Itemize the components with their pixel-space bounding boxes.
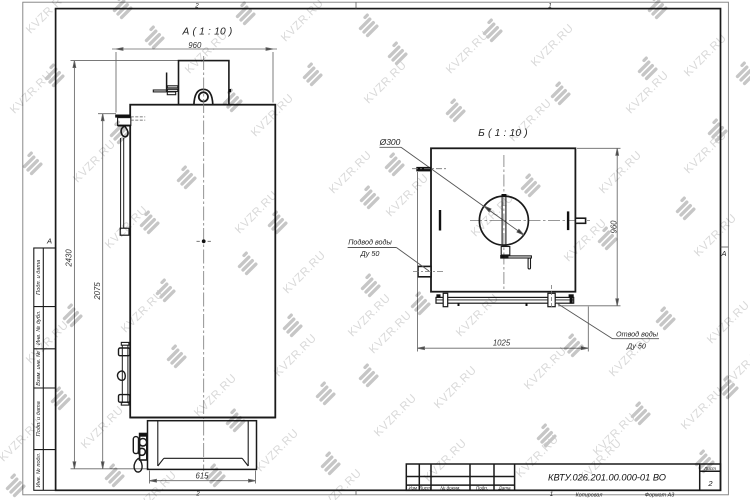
svg-text:Дата: Дата xyxy=(497,485,511,490)
svg-text:2075: 2075 xyxy=(93,282,102,301)
svg-text:2430: 2430 xyxy=(65,249,74,268)
svg-text:Ду 50: Ду 50 xyxy=(360,249,380,258)
svg-text:А: А xyxy=(720,249,726,258)
svg-text:Формат А3: Формат А3 xyxy=(645,493,675,499)
svg-text:КВТУ.026.201.00.000-01 ВО: КВТУ.026.201.00.000-01 ВО xyxy=(548,473,666,483)
svg-text:Отвод воды: Отвод воды xyxy=(616,329,659,338)
svg-text:Подвод воды: Подвод воды xyxy=(348,238,392,247)
svg-text:1025: 1025 xyxy=(493,339,511,348)
svg-text:Подп. и дата: Подп. и дата xyxy=(36,260,42,295)
svg-text:Изм: Изм xyxy=(409,485,418,490)
svg-text:Инв. № подл.: Инв. № подл. xyxy=(36,453,42,488)
svg-text:Ø300: Ø300 xyxy=(379,137,401,147)
svg-text:Копировал: Копировал xyxy=(576,493,603,499)
svg-text:1: 1 xyxy=(548,2,551,9)
svg-text:2: 2 xyxy=(707,479,713,488)
svg-text:Лист: Лист xyxy=(418,485,431,490)
svg-text:1: 1 xyxy=(550,491,553,498)
svg-text:960: 960 xyxy=(609,220,618,234)
svg-text:А: А xyxy=(46,237,52,246)
svg-text:2: 2 xyxy=(194,2,199,9)
svg-text:Подп.: Подп. xyxy=(476,485,488,490)
svg-text:960: 960 xyxy=(188,41,202,50)
svg-text:№ докум.: № докум. xyxy=(440,485,460,490)
svg-text:2: 2 xyxy=(195,490,200,497)
